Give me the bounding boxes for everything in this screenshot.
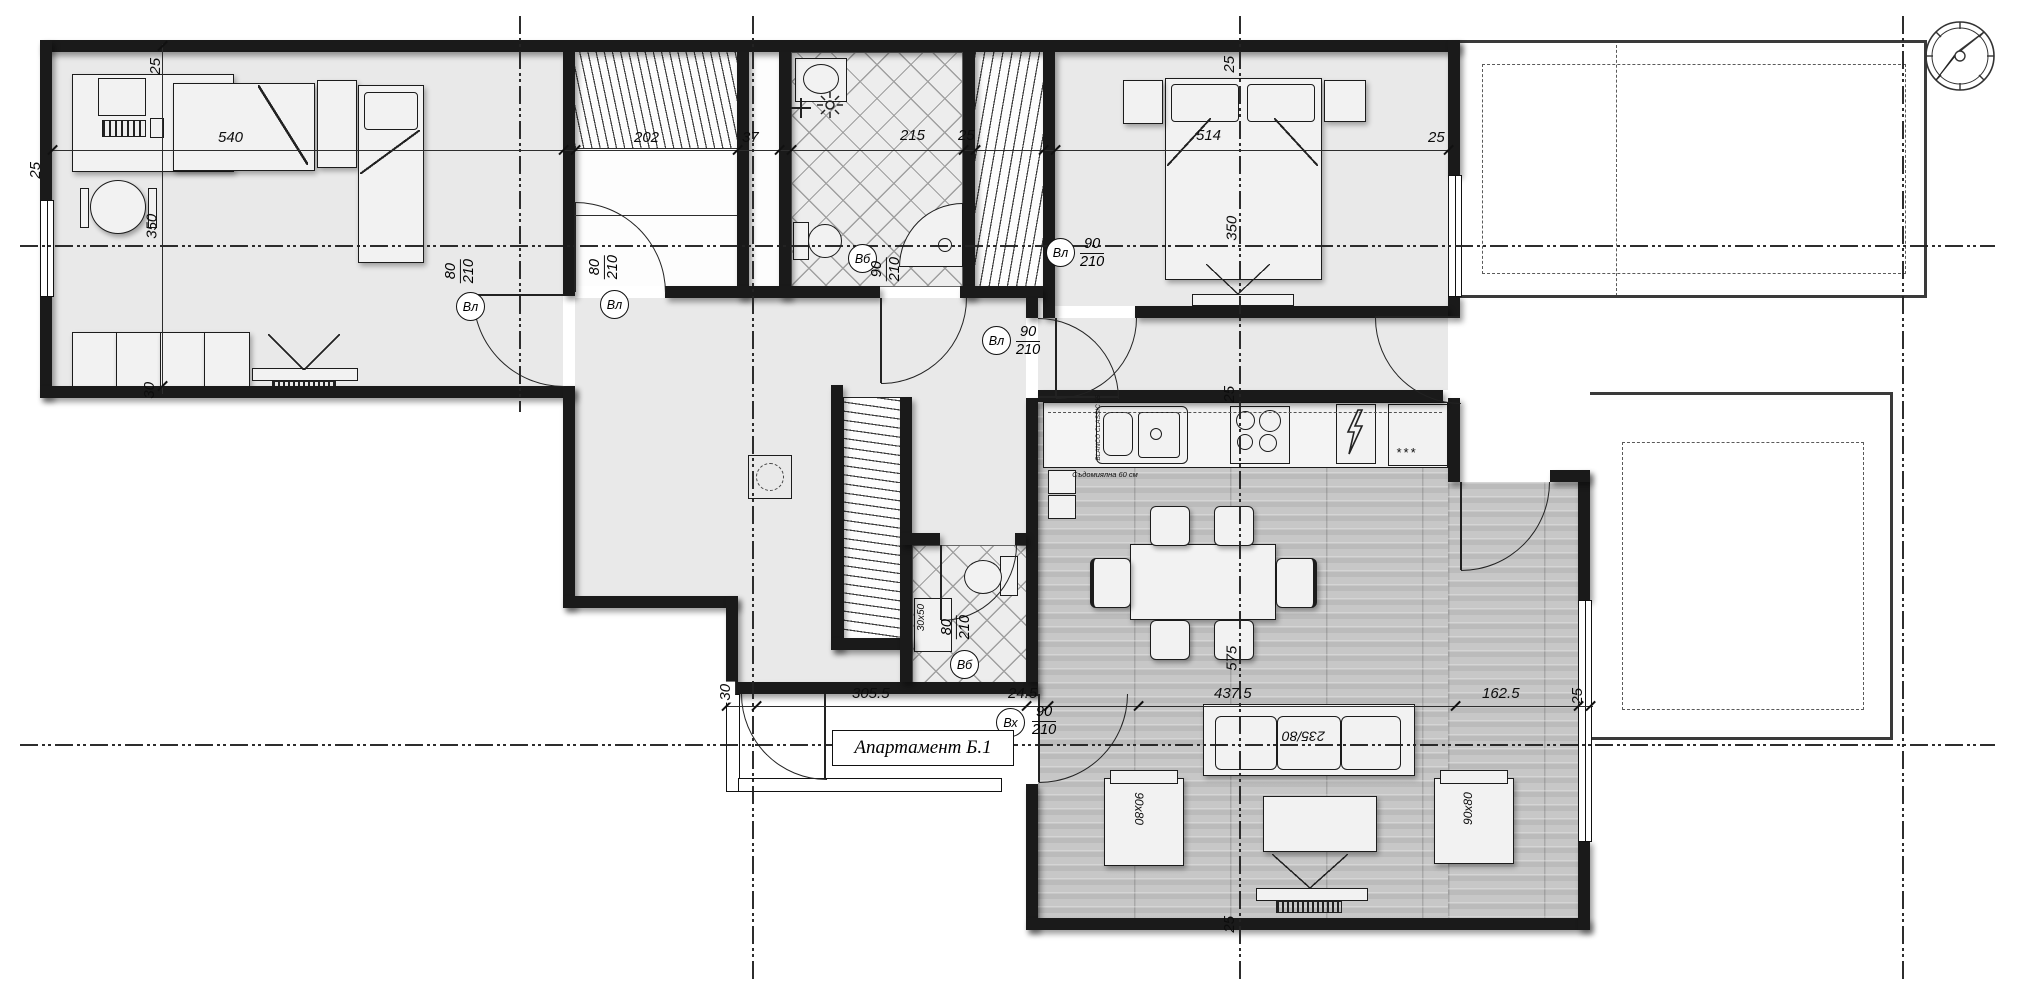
axis-vertical xyxy=(1239,16,1241,980)
office-chair-armrest xyxy=(80,188,89,228)
wall xyxy=(40,386,575,398)
axis-vertical xyxy=(1902,16,1904,980)
armchair-back xyxy=(1440,770,1508,784)
wall xyxy=(960,286,1043,298)
door-tag: Вб xyxy=(950,650,979,679)
wall xyxy=(1578,470,1590,600)
dim-label: 514 xyxy=(1196,128,1221,145)
tv-cabinet xyxy=(160,332,206,387)
sofa-cushion xyxy=(1215,716,1277,770)
bed-fold xyxy=(1274,118,1318,166)
shower-head-icon xyxy=(815,90,845,120)
dining-chair xyxy=(1150,620,1190,660)
terrace-top-edge xyxy=(1460,40,1927,43)
sofa-size-label: 235/80 xyxy=(1282,728,1325,743)
dim-label: 25 xyxy=(1222,916,1239,933)
terrace-dashed-area xyxy=(1482,64,1906,274)
tv-antenna-icon xyxy=(1272,854,1310,888)
wall xyxy=(1026,298,1038,318)
dim-label: 540 xyxy=(218,130,243,147)
dim-label: 215 xyxy=(900,128,925,145)
dim-label: 25 xyxy=(958,128,975,145)
wall xyxy=(963,52,975,298)
coffee-table xyxy=(1263,796,1377,852)
tv-shelf xyxy=(1192,294,1294,306)
door-size: 80210 xyxy=(587,255,621,279)
dim-label: 162.5 xyxy=(1482,686,1520,703)
armchair-back xyxy=(1110,770,1178,784)
toilet-tank xyxy=(793,222,809,260)
sink-brand-label: BLANCO CLASSIC 55 xyxy=(1095,393,1103,463)
sink-basin xyxy=(1103,412,1133,456)
wall xyxy=(1578,840,1590,930)
wall xyxy=(563,596,738,608)
dim-label: 30 xyxy=(718,682,735,703)
tv-soundbar xyxy=(1276,901,1342,913)
wall xyxy=(1448,295,1460,318)
door-tag: Вл xyxy=(600,290,629,319)
dim-label: 437.5 xyxy=(1214,686,1252,703)
stove-burner xyxy=(1259,410,1281,432)
apartment-title: Апартамент Б.1 xyxy=(832,730,1014,766)
closet-shelf xyxy=(575,215,737,216)
tv-antenna-icon xyxy=(1206,264,1238,294)
wall xyxy=(40,40,1460,52)
dim-label: 25 xyxy=(1222,56,1239,73)
tv-shelf xyxy=(1256,888,1368,901)
door-size: 80210 xyxy=(939,615,973,639)
door-tag: Вл xyxy=(1046,238,1075,267)
axis-vertical xyxy=(752,16,754,980)
dim-chain-line xyxy=(726,706,1593,707)
dim-label: 305.5 xyxy=(852,686,890,703)
armchair-size-label: 90x80 xyxy=(1132,792,1145,825)
wall xyxy=(1043,52,1055,318)
dining-chair xyxy=(1214,506,1254,546)
dim-label: 24.5 xyxy=(1008,686,1037,703)
wall xyxy=(726,596,738,694)
wall xyxy=(665,286,880,298)
compass-rose-icon xyxy=(1920,16,2000,96)
dim-label: 350 xyxy=(1224,216,1241,241)
door-size: 90210 xyxy=(1016,324,1040,358)
kitchen-counter-dashline xyxy=(1048,412,1442,413)
door-size: 90210 xyxy=(869,257,903,281)
toilet-bowl xyxy=(808,224,842,258)
tv-antenna-icon xyxy=(268,334,304,370)
ceiling-fixture-dashed xyxy=(756,463,784,491)
wall xyxy=(1026,784,1038,930)
tv-antenna-icon xyxy=(304,334,340,370)
wall xyxy=(563,386,575,608)
door-size: 80210 xyxy=(443,259,477,283)
dim-label: 25 xyxy=(28,162,45,179)
axis-vertical xyxy=(519,16,521,412)
pillow xyxy=(1171,84,1239,122)
faucet-cross-icon xyxy=(789,96,813,120)
wall xyxy=(737,52,749,298)
tv-cabinet xyxy=(204,332,250,387)
window xyxy=(1448,175,1462,297)
dim-label: 37 xyxy=(742,130,759,147)
wardrobe2-floor xyxy=(975,52,1043,286)
bed-fold xyxy=(360,130,420,174)
dining-armchair xyxy=(1090,558,1131,608)
dim-label: 202 xyxy=(634,130,659,147)
tv-antenna-icon xyxy=(1310,854,1348,888)
dim-label: 350 xyxy=(144,214,161,239)
hall-floor xyxy=(575,298,738,596)
window xyxy=(1578,600,1592,842)
terrace2-right-edge xyxy=(1890,392,1893,740)
sink-tap xyxy=(1150,428,1162,440)
tv-cabinet xyxy=(72,332,118,387)
terrace2-dashed-area xyxy=(1622,442,1864,710)
dim-label: 25 xyxy=(1570,688,1587,705)
wall xyxy=(1015,533,1026,545)
fridge-stars-label: *** xyxy=(1396,446,1417,460)
wall xyxy=(900,533,940,545)
sofa-cushion xyxy=(1341,716,1401,770)
office-chair xyxy=(90,180,146,234)
dishwasher-label: Съдомиялна 60 см xyxy=(1072,470,1138,479)
monitor-icon xyxy=(98,78,146,116)
dining-chair xyxy=(1150,506,1190,546)
wall xyxy=(1026,918,1590,930)
terrace-dashed-divider xyxy=(1616,40,1617,296)
door-tag: Вл xyxy=(982,326,1011,355)
keyboard-icon xyxy=(102,120,146,137)
terrace2-bottom-edge xyxy=(1590,737,1893,740)
dim-label: 25 xyxy=(1428,130,1445,147)
dining-table xyxy=(1130,544,1276,620)
wall xyxy=(1550,470,1590,482)
corridor-wall xyxy=(738,778,1002,792)
bed-fold xyxy=(258,85,308,165)
wall xyxy=(831,385,843,650)
living-parquet xyxy=(1038,402,1448,918)
dining-armchair xyxy=(1276,558,1317,608)
floor-plan: 30x50 BLANCO CLASSIC 55 Съдомиялна 60 см… xyxy=(0,0,2020,1000)
armchair-size-label: 90x80 xyxy=(1462,792,1475,825)
door-size: 90210 xyxy=(1080,236,1104,270)
wall xyxy=(1448,398,1460,482)
wall xyxy=(779,52,791,298)
tv-cabinet xyxy=(116,332,162,387)
tv-antenna-icon xyxy=(1238,264,1270,294)
dim-label: 25 xyxy=(1222,386,1239,403)
pillow xyxy=(1247,84,1315,122)
hall-wardrobe xyxy=(843,397,902,640)
axis-horizontal xyxy=(20,245,1995,247)
pillow xyxy=(364,92,418,130)
wall xyxy=(1026,398,1038,682)
door-tag: Вл xyxy=(456,292,485,321)
apartment-title-text: Апартамент Б.1 xyxy=(854,737,991,759)
nightstand xyxy=(317,80,357,168)
wc-sink-size-label: 30x50 xyxy=(916,604,927,631)
nightstand xyxy=(1123,80,1163,124)
lightning-icon xyxy=(1342,408,1368,458)
nightstand xyxy=(1324,80,1366,122)
kitchen-box xyxy=(1048,495,1076,519)
terrace-bottom-edge xyxy=(1460,295,1927,298)
window xyxy=(40,200,54,297)
wall xyxy=(1448,40,1460,175)
terrace2-top-edge xyxy=(1590,392,1893,395)
dim-chain-line xyxy=(52,150,1448,151)
dim-label: 25 xyxy=(148,58,165,75)
dim-chain-line xyxy=(162,44,163,394)
dim-label: 30 xyxy=(142,382,159,399)
stove-burner xyxy=(1259,434,1277,452)
dim-label: 575 xyxy=(1224,646,1241,671)
door-size: 90210 xyxy=(1032,704,1056,738)
